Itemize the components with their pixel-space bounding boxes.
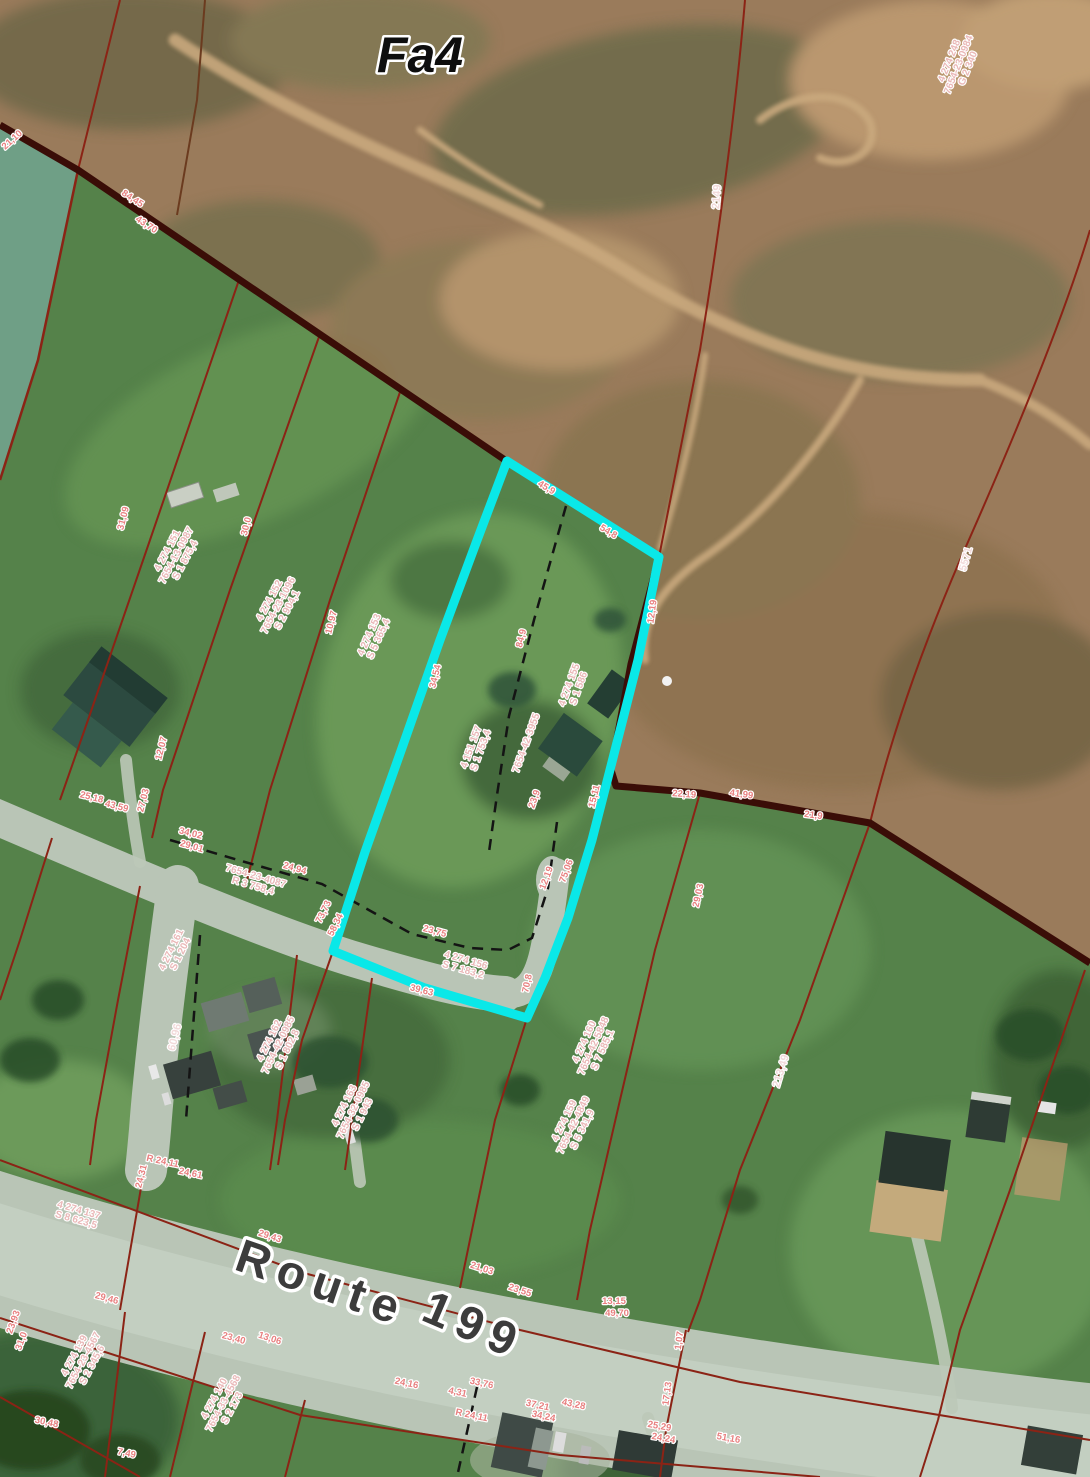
ref-label: 2149 [710,184,724,209]
dim-label: 49,70 [605,1308,629,1319]
map-canvas[interactable]: Fa4Route1994 274 2487654-23-0984G 2 3402… [0,0,1090,1477]
dim-label: 22,19 [672,788,696,801]
white-object [662,676,672,686]
zone-fa4-label: Fa4 [377,27,463,83]
dim-label: 13,15 [602,1296,626,1307]
map-stage: Fa4Route1994 274 2487654-23-0984G 2 3402… [0,0,1090,1477]
